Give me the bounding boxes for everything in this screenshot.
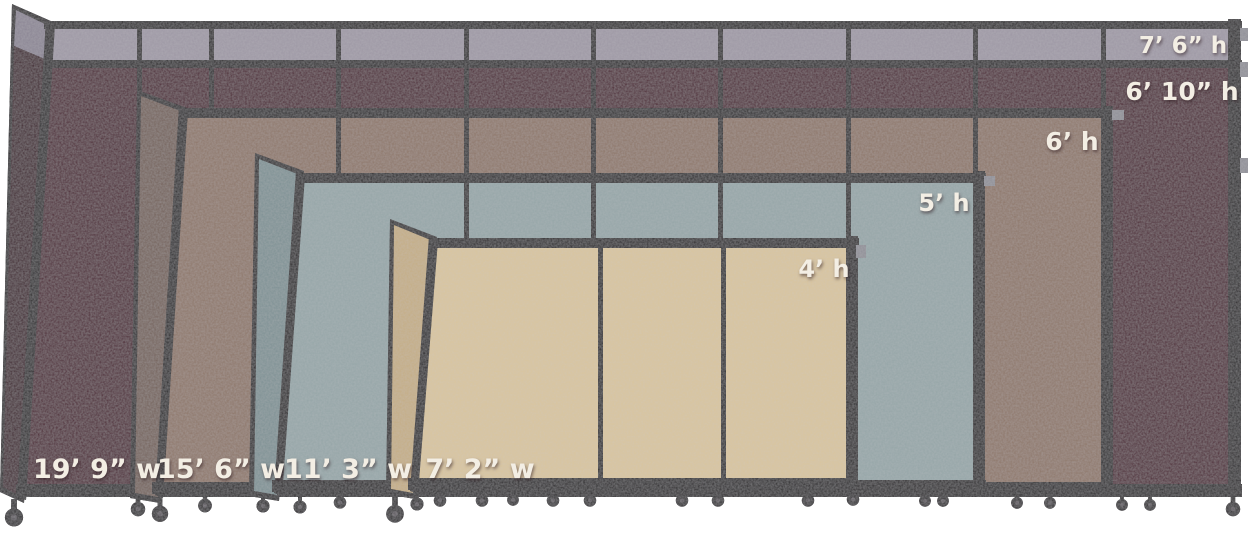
ocean-end-post xyxy=(973,171,985,492)
cranberry-strip-bottom-frame xyxy=(44,60,1242,68)
cranberry-top-frame xyxy=(44,21,1242,29)
ocean-wall-bracket xyxy=(984,176,995,186)
room-divider-size-comparison-image: 7’ 6” h 6’ 10” h 6’ h 5’ h 4’ h 19’ 9” w… xyxy=(0,0,1248,542)
label-height-6ft10: 6’ 10” h xyxy=(1125,77,1238,106)
mocha-wall-bracket xyxy=(1112,110,1124,120)
sand-top-frame xyxy=(429,238,859,248)
label-height-5ft: 5’ h xyxy=(918,189,969,217)
size-comparison-graphic: 7’ 6” h 6’ 10” h 6’ h 5’ h 4’ h 19’ 9” w… xyxy=(0,0,1248,542)
sand-wall-bracket xyxy=(856,245,866,258)
ocean-top-frame xyxy=(296,173,986,183)
divider-scene xyxy=(0,4,1248,527)
label-height-7ft6: 7’ 6” h xyxy=(1139,33,1227,59)
label-width-11ft3: 11’ 3” w xyxy=(284,454,412,485)
label-width-15ft6: 15’ 6” w xyxy=(157,454,285,485)
label-width-7ft2: 7’ 2” w xyxy=(425,454,534,485)
label-height-6ft: 6’ h xyxy=(1045,127,1098,156)
cranberry-wall-bracket-top xyxy=(1240,28,1248,41)
cranberry-wall-bracket-low xyxy=(1240,158,1248,173)
mocha-top-frame xyxy=(179,108,1113,118)
cranberry-wall-bracket-mid xyxy=(1240,62,1248,77)
label-width-19ft9: 19’ 9” w xyxy=(33,454,161,485)
mocha-end-post xyxy=(1101,106,1113,494)
sand-face xyxy=(433,241,855,478)
cranberry-top-strip xyxy=(50,28,1236,62)
label-height-4ft: 4’ h xyxy=(798,255,849,283)
